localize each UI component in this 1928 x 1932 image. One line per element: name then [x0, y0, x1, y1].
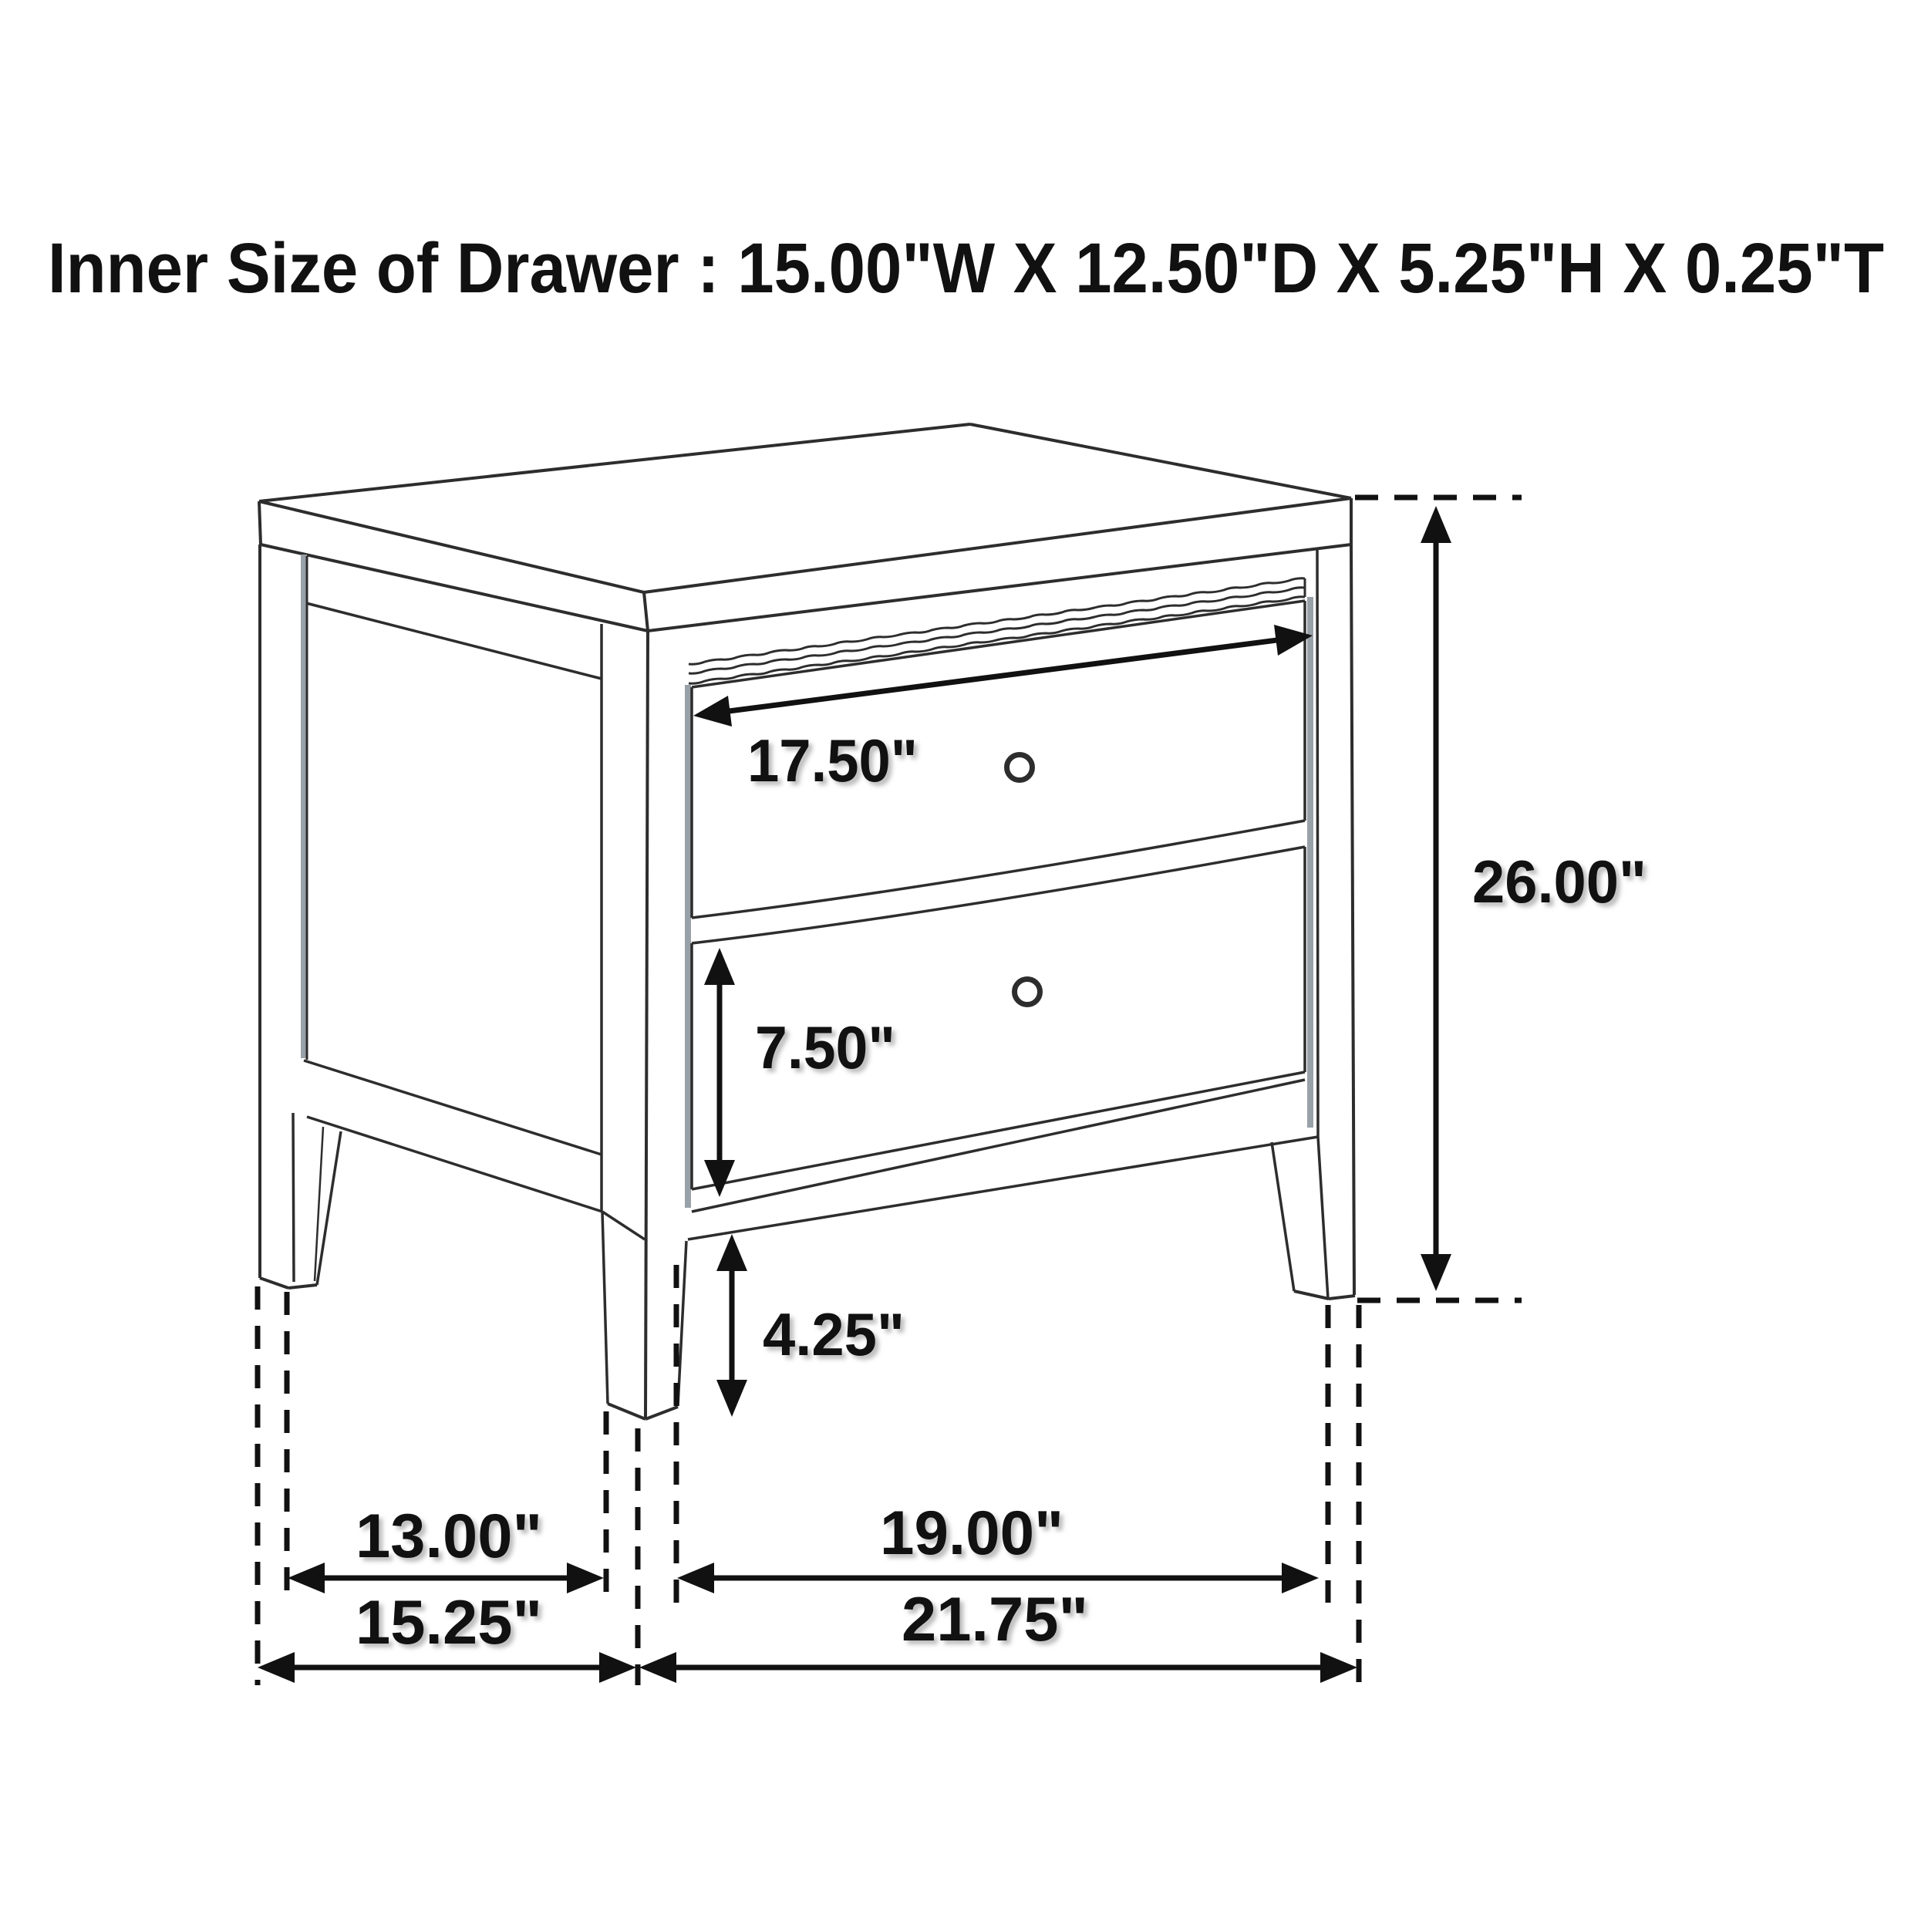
svg-text:15.25": 15.25" [356, 1588, 542, 1657]
svg-text:17.50": 17.50" [747, 727, 918, 794]
svg-text:21.75": 21.75" [902, 1585, 1088, 1654]
svg-text:19.00": 19.00" [880, 1499, 1063, 1568]
svg-text:7.50": 7.50" [755, 1013, 895, 1081]
svg-text:4.25": 4.25" [763, 1300, 905, 1368]
svg-text:Inner Size of Drawer : 15.00"W: Inner Size of Drawer : 15.00"W X 12.50"D… [48, 229, 1884, 308]
svg-text:26.00": 26.00" [1472, 848, 1647, 915]
svg-text:13.00": 13.00" [356, 1502, 542, 1571]
